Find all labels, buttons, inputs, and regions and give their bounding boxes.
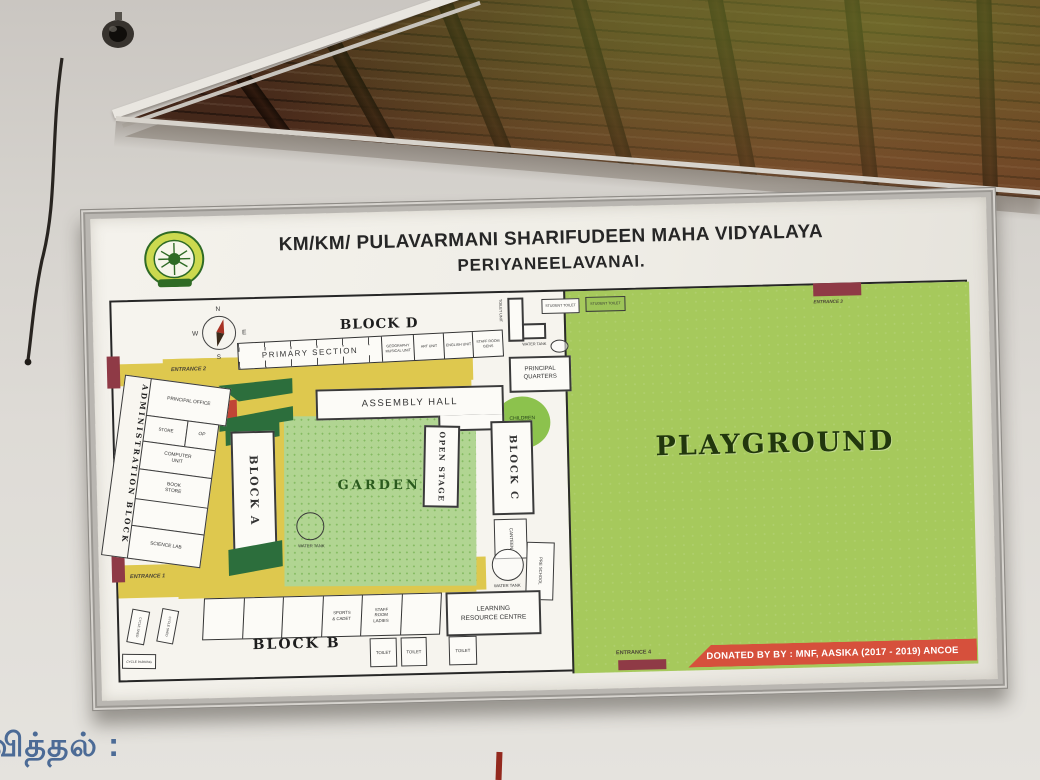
wall-red-mark <box>496 752 503 780</box>
student-toilet-2-label: STUDENT TOILET <box>590 301 620 306</box>
shed-3: CYCLE PARKING <box>122 654 156 669</box>
student-toilet-1-label: STUDENT TOILET <box>545 303 575 308</box>
water-tank-3 <box>491 549 524 582</box>
water-tank-2 <box>296 512 324 540</box>
art-unit-label: ART UNIT <box>421 344 438 349</box>
tamil-wall-text: வித்தல் : <box>0 726 120 769</box>
shed-2: CYCLE SHED <box>156 608 179 645</box>
entrance-1-label: ENTRANCE 1 <box>130 573 165 580</box>
entrance-2-label: ENTRANCE 2 <box>171 366 206 373</box>
shed-1: CYCLE SHED <box>126 609 150 646</box>
donation-banner-text: DONATED BY BY : MNF, AASIKA (2017 - 2019… <box>706 644 958 661</box>
photo-scene: KM/KM/ PULAVARMANI SHARIFUDEEN MAHA VIDY… <box>0 0 1040 780</box>
block-b-label: BLOCK B <box>253 635 341 653</box>
principal-quarters-label: PRINCIPAL QUARTERS <box>511 366 569 383</box>
science-lab-label: SCIENCE LAB <box>148 541 182 551</box>
computer-unit-label: COMPUTER UNIT <box>158 451 197 468</box>
shed-1-label: CYCLE SHED <box>135 617 142 638</box>
toilet-2-label: TOILET <box>406 649 421 654</box>
op-label: OP <box>198 432 206 439</box>
block-a-label: BLOCK A <box>248 455 261 527</box>
compass-n: N <box>215 306 220 313</box>
compass-w: W <box>192 330 198 337</box>
compass-e: E <box>242 329 247 336</box>
geography-musical-unit-label: GEOGRAPHY MUSICAL UNIT <box>382 343 414 354</box>
english-unit-label: ENGLISH UNIT <box>446 342 471 348</box>
staff-room-ladies-label: STAFF ROOM LADIES <box>371 606 392 623</box>
staff-room-ladies-room: STAFF ROOM LADIES <box>361 595 402 636</box>
canteen-label: CANTEEN <box>508 528 513 550</box>
toilet-3: TOILET <box>449 636 478 666</box>
block-b-building: SPORTS & CADET STAFF ROOM LADIES <box>202 593 442 641</box>
learning-resource-centre-label: LEARNING RESOURCE CENTRE <box>458 603 528 623</box>
block-b-room <box>203 598 244 639</box>
toilet-2: TOILET <box>401 637 428 667</box>
english-unit-room: ENGLISH UNIT <box>444 332 475 358</box>
board-surface: KM/KM/ PULAVARMANI SHARIFUDEEN MAHA VIDY… <box>90 197 998 701</box>
assembly-hall-label: ASSEMBLY HALL <box>362 396 458 409</box>
principal-quarters: PRINCIPAL QUARTERS <box>509 355 572 393</box>
l-building-foot <box>522 323 546 340</box>
compass-s: S <box>217 354 222 361</box>
student-toilet-1: STUDENT TOILET <box>541 298 579 314</box>
entrance-3-label: ENTRANCE 3 <box>813 299 842 305</box>
toilet-3-label: TOILET <box>455 648 470 653</box>
shed-3-label: CYCLE PARKING <box>126 659 152 663</box>
entrance-2-marker <box>107 356 121 388</box>
block-b-room <box>282 596 323 637</box>
entrance-4-label: ENTRANCE 4 <box>616 649 651 656</box>
geography-musical-unit-room: GEOGRAPHY MUSICAL UNIT <box>382 335 416 362</box>
open-stage: OPEN STAGE <box>423 425 461 508</box>
shed-2-label: CYCLE SHED <box>164 616 171 637</box>
learning-resource-centre: LEARNING RESOURCE CENTRE <box>445 590 541 636</box>
open-stage-label: OPEN STAGE <box>437 431 446 502</box>
student-toilet-2: STUDENT TOILET <box>585 296 625 312</box>
campus-map: PLAYGROUND ENTRANCE 2 ENTRANCE 1 ENTRANC… <box>109 280 976 683</box>
principal-office-label: PRINCIPAL OFFICE <box>166 397 210 409</box>
water-tank-3-label: WATER TANK <box>484 582 530 588</box>
entrance-4-marker <box>618 659 666 670</box>
sports-cadet-label: SPORTS & CADET <box>332 610 353 622</box>
block-b-room <box>401 594 441 635</box>
block-d-label: BLOCK D <box>340 314 450 333</box>
compass-needle-icon <box>205 316 235 352</box>
playground-area <box>563 282 978 674</box>
art-unit-room: ART UNIT <box>414 333 445 359</box>
book-store-label: BOOK STORE <box>158 481 189 497</box>
toilet-1-label: TOILET <box>376 650 391 655</box>
sports-cadet-room: SPORTS & CADET <box>322 595 363 636</box>
water-tank-2-label: WATER TANK <box>286 543 336 548</box>
block-c-label: BLOCK C <box>507 435 519 502</box>
store-label: STORE <box>158 427 174 434</box>
block-b-room <box>243 597 284 638</box>
school-map-board: KM/KM/ PULAVARMANI SHARIFUDEEN MAHA VIDY… <box>80 187 1008 711</box>
entrance-3-marker <box>813 282 861 296</box>
block-a: BLOCK A <box>230 431 277 552</box>
pre-school-label: PRE SCHOOL <box>537 557 542 585</box>
water-tank-1-label: WATER TANK <box>506 342 546 347</box>
block-c: BLOCK C <box>490 420 534 515</box>
toilet-unit-label: TOILET UNIT <box>497 299 502 345</box>
school-logo-icon <box>143 228 207 293</box>
toilet-1: TOILET <box>370 638 398 668</box>
